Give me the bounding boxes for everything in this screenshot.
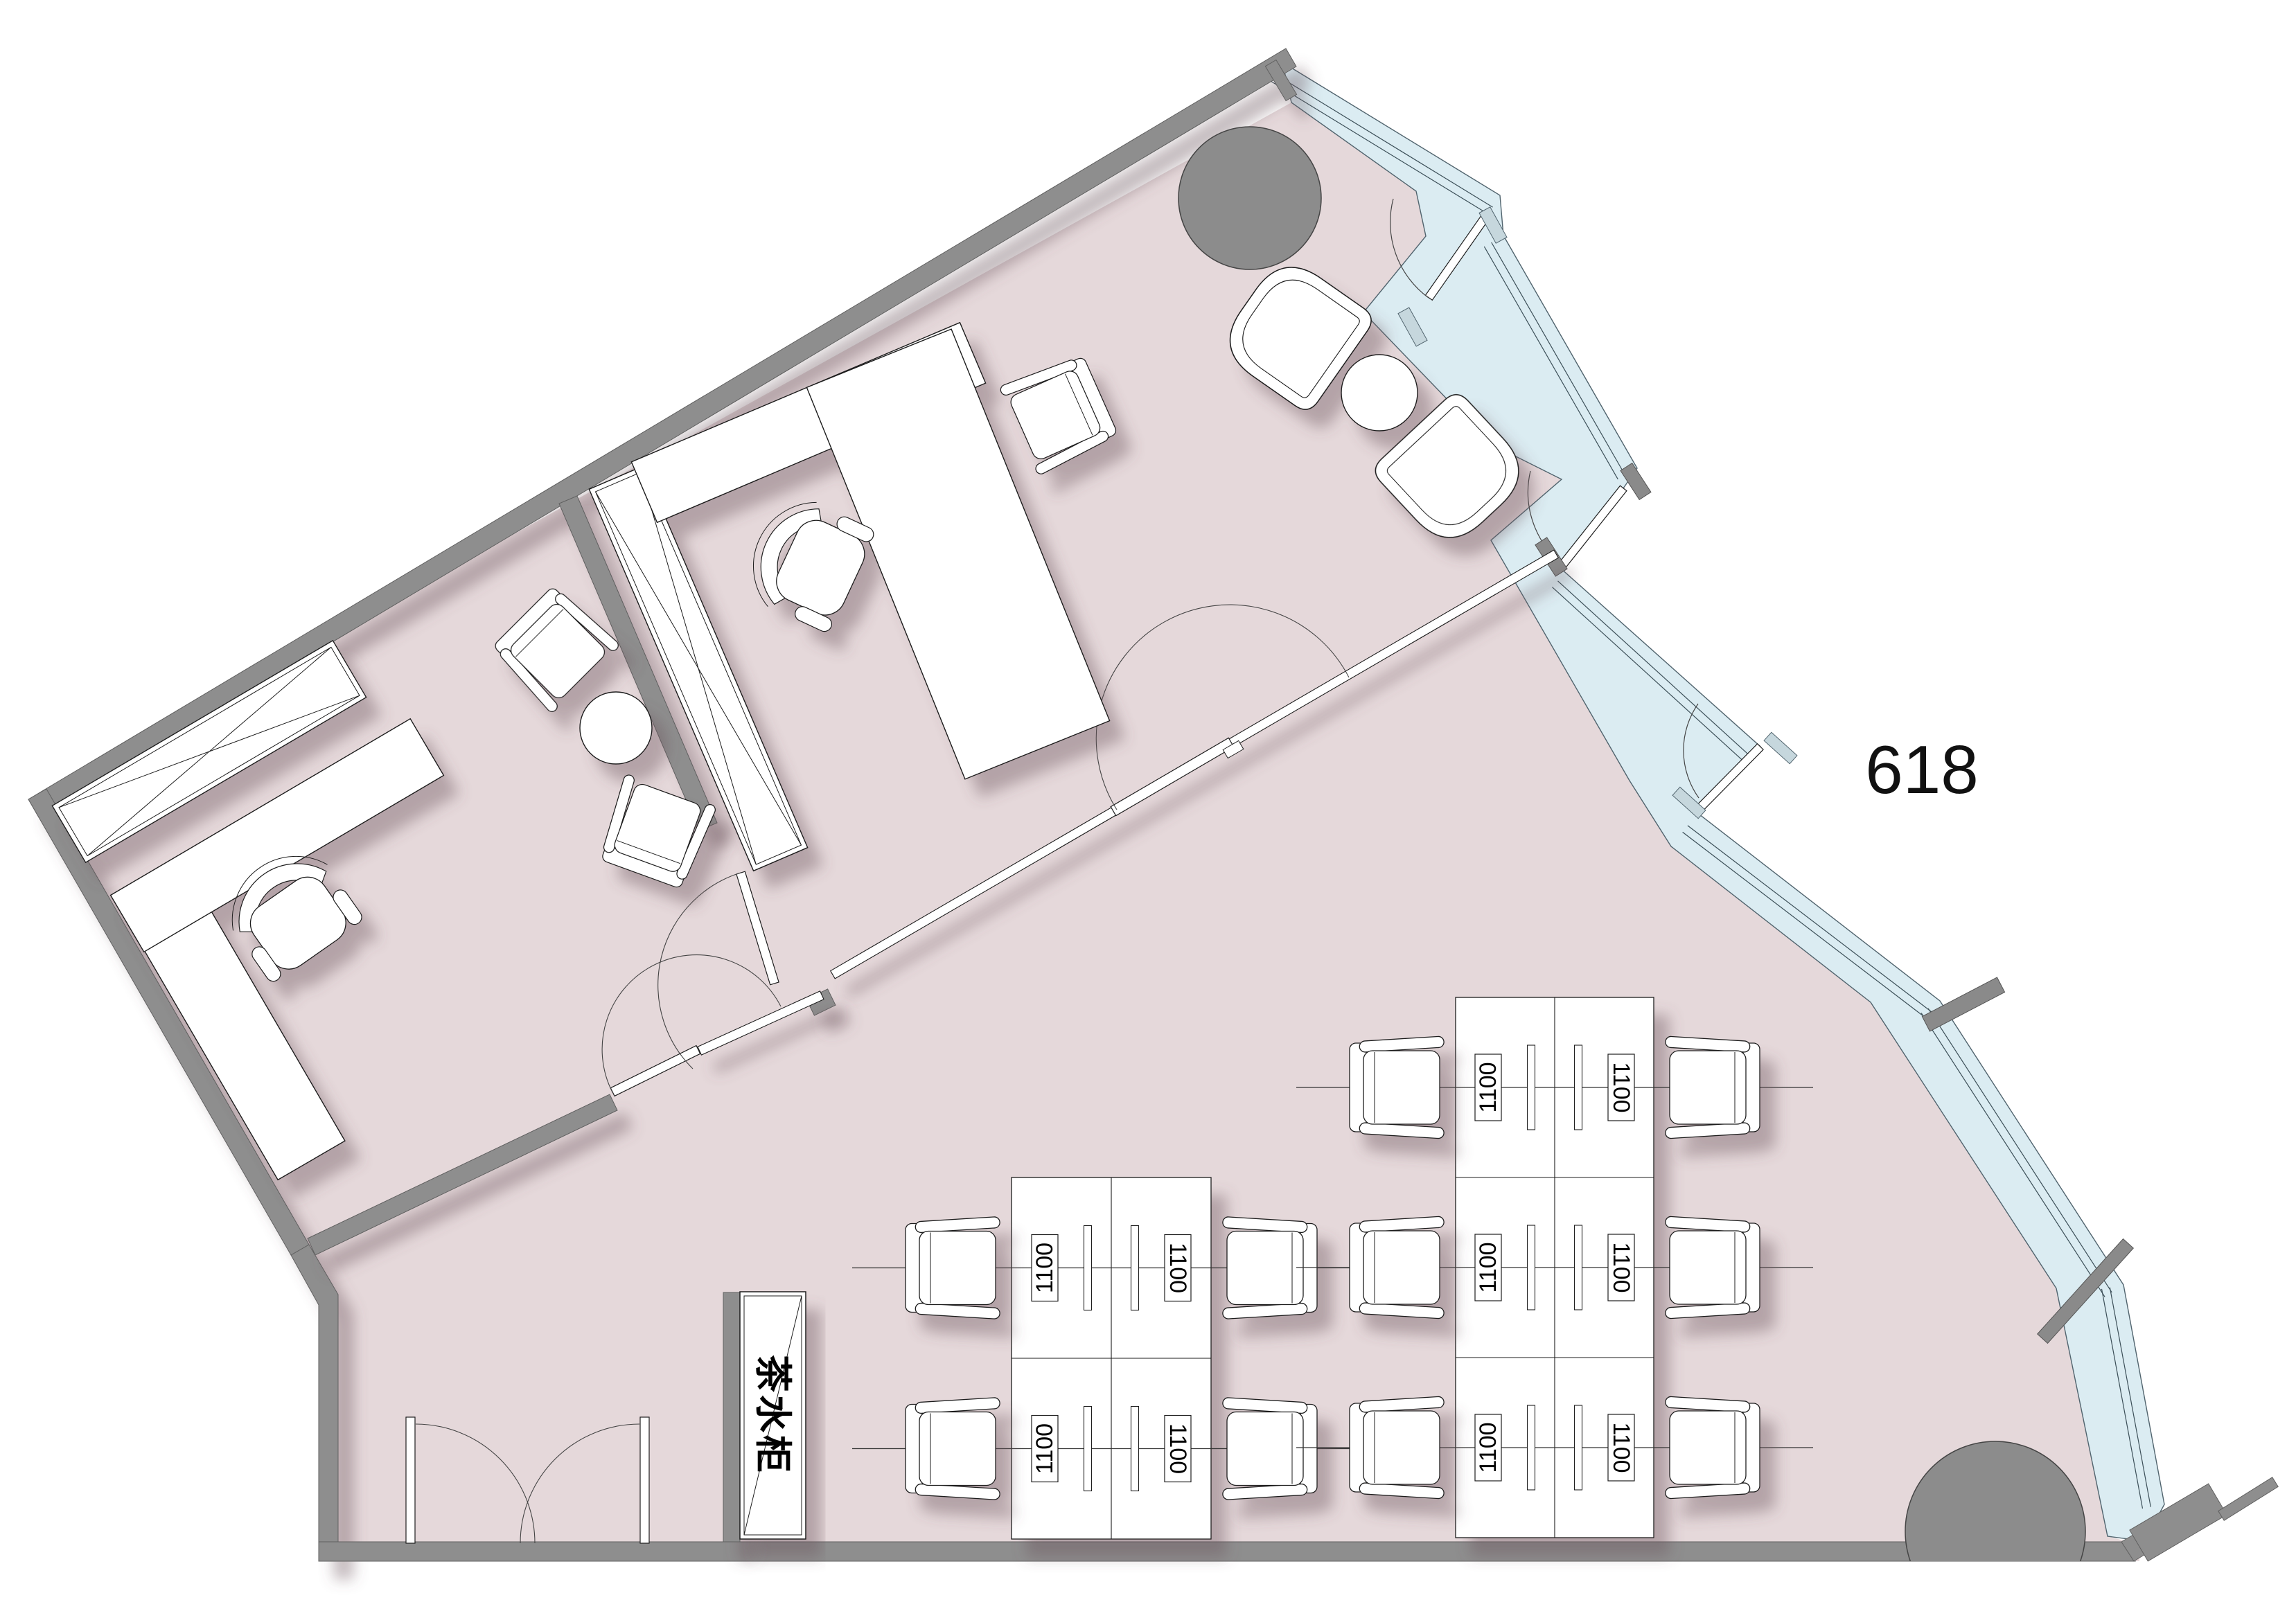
- svg-text:1100: 1100: [1608, 1242, 1634, 1292]
- svg-text:茶水柜: 茶水柜: [752, 1355, 793, 1475]
- svg-text:1100: 1100: [1608, 1422, 1634, 1473]
- svg-text:1100: 1100: [1165, 1423, 1191, 1474]
- svg-text:1100: 1100: [1475, 1062, 1501, 1112]
- svg-text:1100: 1100: [1475, 1242, 1501, 1292]
- svg-text:1100: 1100: [1032, 1423, 1058, 1474]
- svg-text:1100: 1100: [1165, 1243, 1191, 1293]
- svg-text:1100: 1100: [1032, 1243, 1058, 1293]
- svg-text:618: 618: [1865, 731, 1979, 808]
- svg-text:1100: 1100: [1475, 1422, 1501, 1473]
- svg-text:1100: 1100: [1608, 1062, 1634, 1112]
